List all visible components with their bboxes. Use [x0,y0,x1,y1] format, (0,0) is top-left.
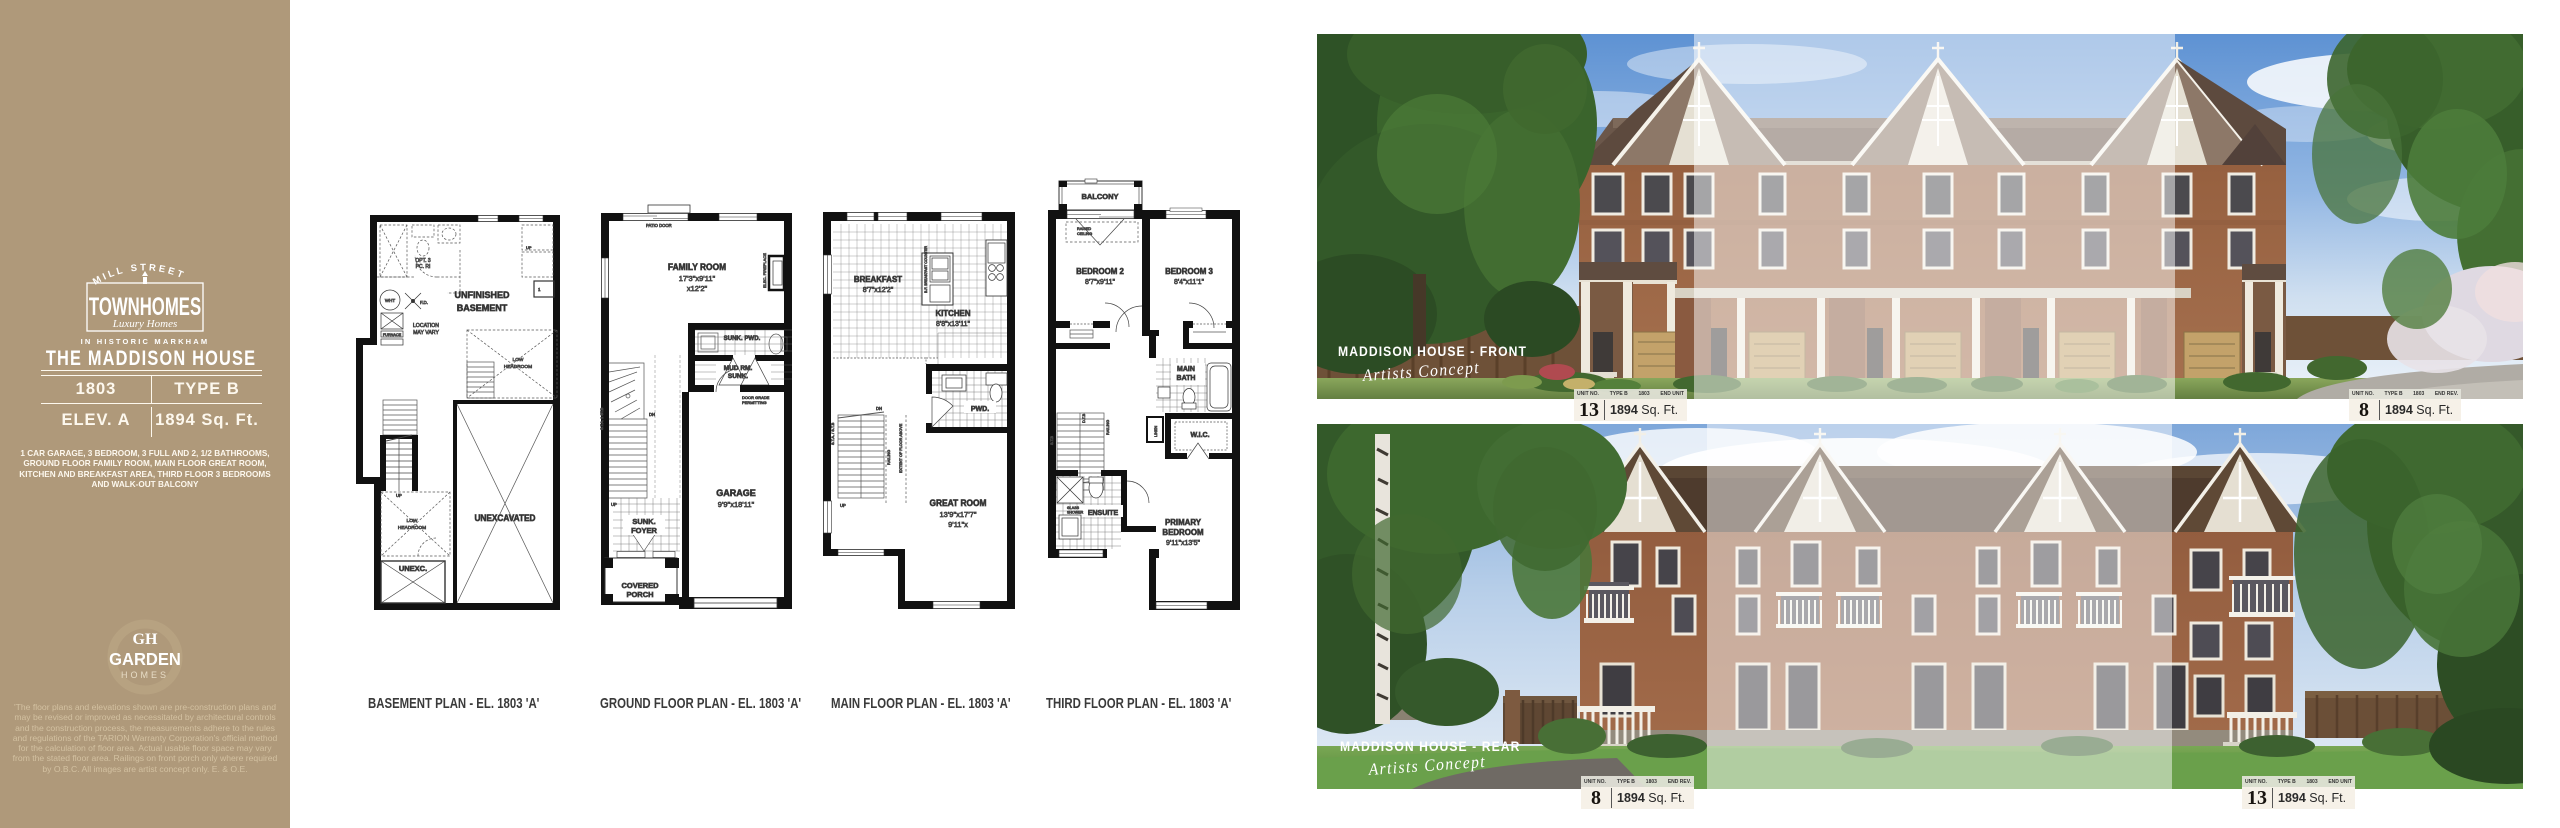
svg-text:GH: GH [133,631,158,648]
svg-text:UP: UP [526,245,532,250]
svg-text:UNEXCAVATED: UNEXCAVATED [474,513,535,523]
svg-text:LOW: LOW [513,357,524,363]
svg-text:8'8"x13'11": 8'8"x13'11" [936,321,970,328]
svg-text:RAILING: RAILING [1106,420,1110,435]
svg-text:ENSUITE: ENSUITE [1088,510,1119,517]
svg-text:GREAT ROOM: GREAT ROOM [929,498,986,508]
svg-text:9'9"x18'11": 9'9"x18'11" [718,500,755,509]
svg-text:BEDROOM 3: BEDROOM 3 [1165,267,1213,276]
svg-text:FAMILY ROOM: FAMILY ROOM [668,262,726,272]
svg-text:RAISED: RAISED [1077,227,1091,231]
svg-text:GARDEN: GARDEN [109,648,181,669]
svg-text:BASEMENT: BASEMENT [457,303,508,313]
svg-text:MAY VARY: MAY VARY [413,330,439,336]
svg-text:PORCH: PORCH [626,590,653,599]
svg-text:W.I.C.: W.I.C. [1190,432,1209,439]
svg-text:PRIMARY: PRIMARY [1165,518,1202,527]
svg-text:SUNK.: SUNK. [728,373,748,380]
svg-text:D.T.B: D.T.B [1082,413,1086,423]
svg-text:CEILING: CEILING [1077,232,1092,236]
svg-text:HEADROOM: HEADROOM [398,525,426,531]
svg-text:PERMITTING: PERMITTING [742,400,767,405]
svg-text:FURNACE: FURNACE [383,333,402,337]
svg-text:B.F. BREAKFAST COUNTER: B.F. BREAKFAST COUNTER [924,246,928,293]
svg-text:9'11"x: 9'11"x [948,520,968,529]
svg-text:DN: DN [876,406,882,411]
svg-text:GARAGE: GARAGE [716,488,756,498]
svg-text:SUNK.: SUNK. [632,517,655,526]
svg-text:EXTENT OF FLOOR ABOVE: EXTENT OF FLOOR ABOVE [899,423,903,473]
svg-text:Luxury Homes: Luxury Homes [112,318,177,330]
svg-text:8'7"x12'2": 8'7"x12'2" [863,287,894,294]
svg-text:FOYER: FOYER [631,526,657,535]
svg-text:UP: UP [396,493,402,498]
svg-text:TOWNHOMES: TOWNHOMES [89,293,201,321]
svg-text:ELEC. FIREPLACE: ELEC. FIREPLACE [762,253,767,288]
svg-text:MADDISON HOUSE - REAR: MADDISON HOUSE - REAR [1340,738,1520,754]
svg-text:SUNK. PWD.: SUNK. PWD. [724,335,761,342]
svg-text:BEDROOM: BEDROOM [1162,528,1203,537]
svg-text:MUD RM.: MUD RM. [724,365,753,372]
svg-text:PC. RI: PC. RI [416,264,431,270]
svg-text:17'3"x9'11": 17'3"x9'11" [679,274,716,283]
svg-text:1: 1 [538,287,541,292]
svg-text:S.T.A. 1 ST.B: S.T.A. 1 ST.B [600,407,604,430]
svg-text:x12'2": x12'2" [687,284,708,293]
svg-text:LINEN: LINEN [1154,426,1158,437]
svg-text:IN HISTORIC MARKHAM: IN HISTORIC MARKHAM [81,337,210,346]
svg-text:MAIN: MAIN [1177,366,1195,373]
svg-text:GLASS: GLASS [1067,506,1080,510]
svg-text:BREAKFAST: BREAKFAST [854,275,902,284]
svg-text:LOCATION: LOCATION [413,323,439,329]
svg-text:PATIO DOOR: PATIO DOOR [646,223,672,228]
svg-text:HEADROOM: HEADROOM [504,364,532,370]
svg-text:F.D.: F.D. [420,300,428,305]
svg-text:S.T.A. / S.T.B: S.T.A. / S.T.B [831,422,835,445]
svg-text:UNFINISHED: UNFINISHED [454,290,509,300]
svg-text:BATH: BATH [1177,375,1196,382]
svg-text:DN: DN [649,412,655,417]
svg-text:SHOWER: SHOWER [1067,511,1084,515]
svg-text:9'11"x13'5": 9'11"x13'5" [1166,540,1200,547]
svg-text:LOW: LOW [407,518,418,524]
svg-text:WHT: WHT [385,298,395,303]
svg-text:BEDROOM 2: BEDROOM 2 [1076,267,1124,276]
svg-text:UNEXC.: UNEXC. [399,564,427,573]
svg-text:13'9"x17'7": 13'9"x17'7" [940,510,977,519]
svg-text:8'7"x9'11": 8'7"x9'11" [1085,279,1116,286]
svg-text:8'4"x11'1": 8'4"x11'1" [1174,279,1205,286]
svg-text:HOMES: HOMES [121,670,169,680]
svg-text:MADDISON HOUSE - FRONT: MADDISON HOUSE - FRONT [1338,343,1527,359]
svg-text:RAILING: RAILING [887,450,891,465]
svg-text:KITCHEN: KITCHEN [935,309,970,318]
svg-text:UP: UP [611,502,617,507]
svg-text:COVERED: COVERED [621,581,659,590]
svg-text:UP: UP [840,503,846,508]
svg-text:BALCONY: BALCONY [1081,192,1118,201]
svg-text:PWD.: PWD. [971,406,989,413]
svg-text:MILL STREET: MILL STREET [91,262,187,287]
svg-text:S.T.B: S.T.B [1050,435,1054,445]
